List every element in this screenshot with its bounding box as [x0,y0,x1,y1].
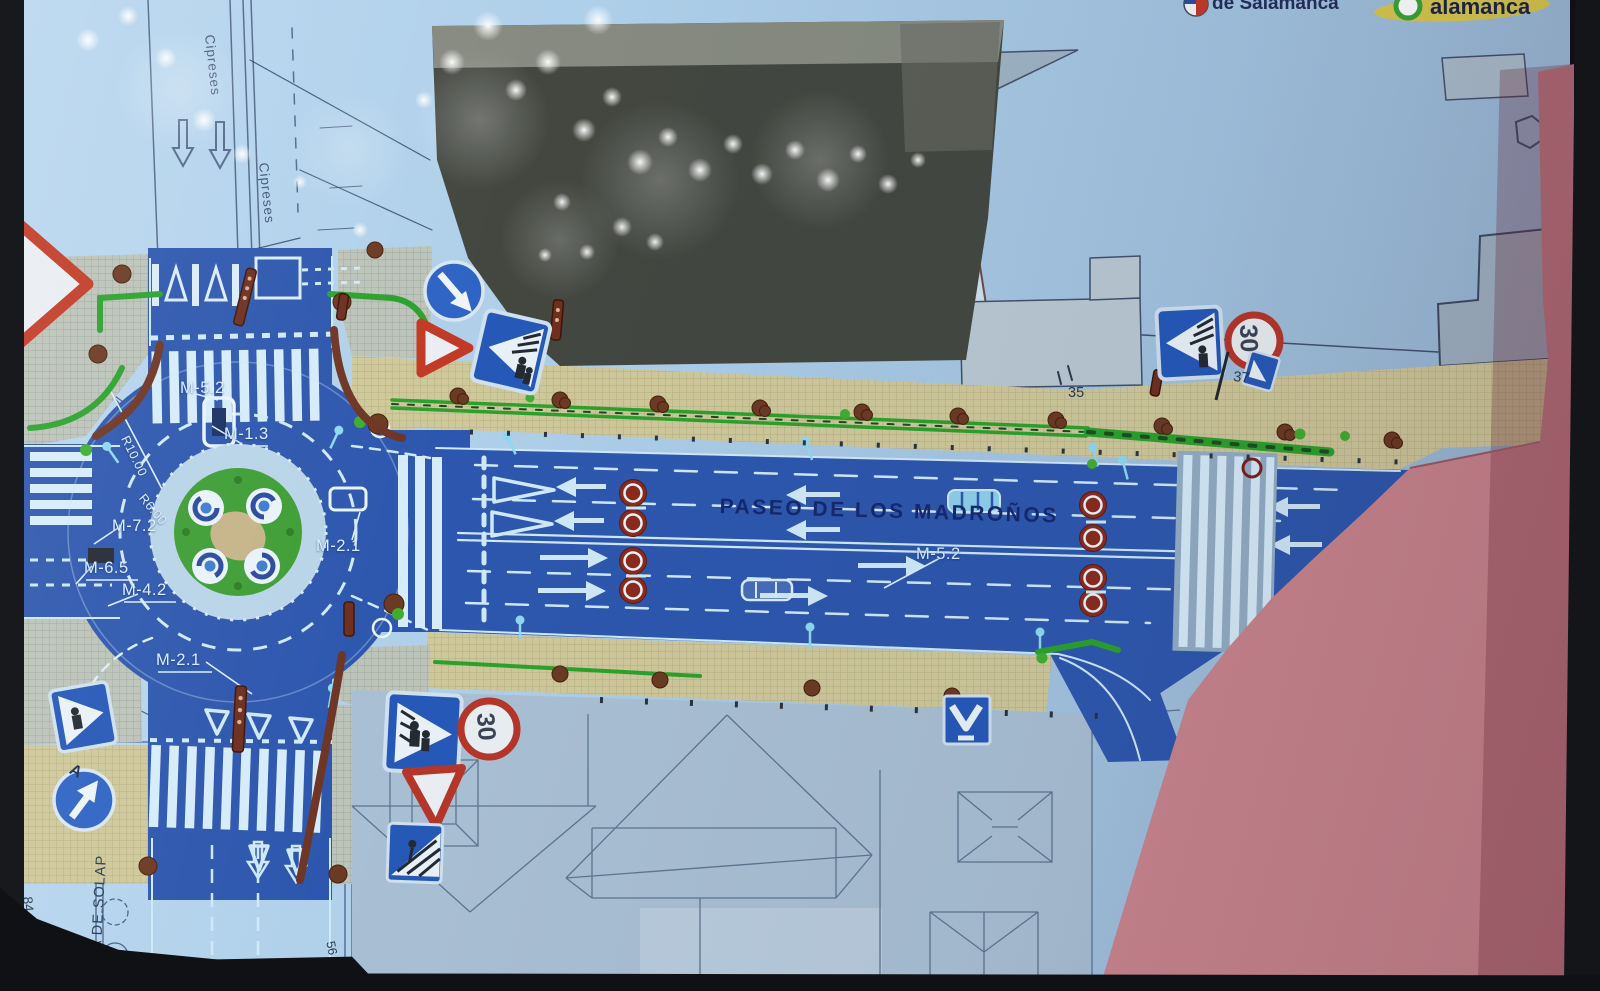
speed-limit-value-bottom: 30 [472,712,499,741]
plan-drawing [0,0,1600,991]
pedestrian-crossing-sign-bottom [384,692,462,774]
pedestrian-crossing-sign-right [1156,306,1224,379]
speed-limit-value-right: 30 [1235,324,1261,353]
building-number-84-86: 84-86 [21,896,37,932]
marking-label-m21-south: M-2.1 [156,652,201,669]
marking-label-m21-east: M-2.1 [316,538,361,555]
roundabout-island [150,444,326,620]
logo-left-text: de Salamanca [1212,0,1339,13]
street-number-37: 37 [1232,370,1250,386]
logo-right-text: alamanca [1430,0,1530,18]
top-building-block [432,20,1004,366]
pedestrian-crossing-sign-top [471,309,552,394]
marking-label-m13: M-1.3 [224,426,269,443]
logo-green-ring-icon [1396,0,1420,18]
mandatory-arrow-sign-top [425,262,483,320]
street-number-35: 35 [1068,386,1084,401]
marking-label-m65: M-6.5 [84,560,129,577]
marking-label-m72: M-7.2 [112,518,157,535]
street-number-56: 56 [324,940,339,956]
marking-label-m52-roundabout: M-5.2 [180,380,225,397]
zebra-crossing-sign-bottom [387,823,443,883]
marking-label-m52-road: M-5.2 [916,546,961,563]
direction-sign-building [944,696,990,744]
site-plan-photo: de Salamanca alamanca Cipreses Cipreses … [0,0,1600,991]
pedestrian-crossing-sign-west [49,681,117,752]
marking-label-m42: M-4.2 [122,582,167,599]
